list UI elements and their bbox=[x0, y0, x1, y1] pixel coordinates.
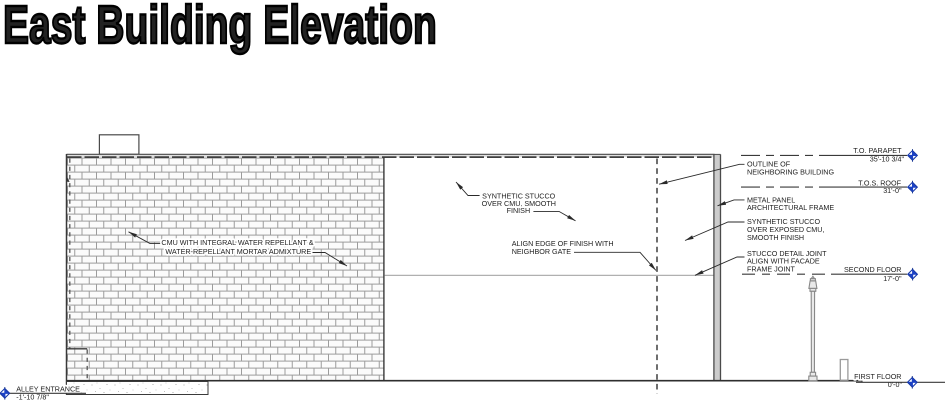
svg-text:SMOOTH FINISH: SMOOTH FINISH bbox=[747, 233, 804, 242]
svg-text:FRAME JOINT: FRAME JOINT bbox=[747, 264, 796, 273]
svg-text:NEIGHBORING BUILDING: NEIGHBORING BUILDING bbox=[747, 167, 834, 176]
svg-text:NEIGHBOR GATE: NEIGHBOR GATE bbox=[512, 247, 572, 256]
svg-text:SECOND FLOOR: SECOND FLOOR bbox=[844, 265, 902, 274]
svg-text:17'-0": 17'-0" bbox=[883, 274, 902, 283]
svg-text:0'-0": 0'-0" bbox=[888, 380, 903, 389]
svg-text:East Building Elevation: East Building Elevation bbox=[3, 0, 437, 54]
svg-text:CMU WITH INTEGRAL WATER REPELL: CMU WITH INTEGRAL WATER REPELLANT & bbox=[161, 238, 313, 247]
svg-text:FINISH: FINISH bbox=[507, 206, 531, 215]
svg-text:WATER-REPELLANT MORTAR ADMIXTU: WATER-REPELLANT MORTAR ADMIXTURE bbox=[165, 247, 311, 256]
svg-text:ARCHITECTURAL FRAME: ARCHITECTURAL FRAME bbox=[747, 203, 834, 212]
